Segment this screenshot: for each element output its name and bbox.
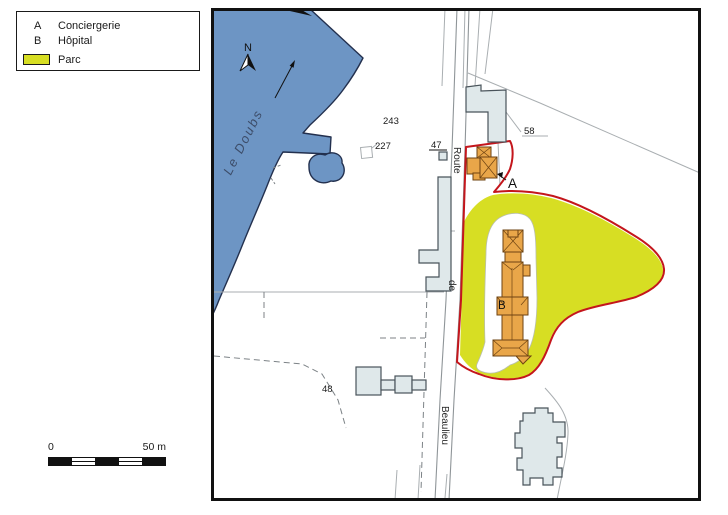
scale-bar-segment	[72, 458, 95, 465]
road-label-de: de	[446, 280, 457, 292]
parcel-number-243: 243	[383, 116, 399, 127]
building-small-47	[439, 152, 447, 160]
legend-label-parc: Parc	[58, 53, 81, 67]
legend-key-b: B	[34, 34, 58, 48]
scale-end-label: 50 m	[143, 441, 166, 453]
scale-bar: 0 50 m	[48, 441, 166, 466]
scale-bar-strip	[48, 457, 166, 466]
parcel-number-47: 47	[431, 140, 442, 151]
scale-bar-segment	[119, 458, 142, 465]
map-figure: A Conciergerie B Hôpital Parc N Le Doubs	[0, 0, 728, 515]
scale-start-label: 0	[48, 441, 54, 453]
scale-bar-labels: 0 50 m	[48, 441, 166, 453]
legend-key-a: A	[34, 19, 58, 33]
parcel-number-48: 48	[322, 384, 333, 395]
legend-label-hopital: Hôpital	[58, 34, 92, 48]
scale-bar-segment	[142, 458, 165, 465]
pond	[309, 153, 344, 183]
marker-b-label: B	[498, 300, 506, 312]
road-label-route: Route	[451, 147, 462, 174]
scale-bar-segment	[95, 458, 118, 465]
parcel-number-227: 227	[375, 141, 391, 152]
site-map: N Le Doubs	[211, 8, 701, 501]
marker-a-label: A	[508, 176, 517, 191]
road-label-beaulieu: Beaulieu	[439, 406, 450, 445]
north-label: N	[244, 42, 252, 54]
scale-bar-segment	[49, 458, 72, 465]
legend-item-hopital: B Hôpital	[22, 33, 191, 48]
legend: A Conciergerie B Hôpital Parc	[16, 11, 200, 71]
legend-item-parc: Parc	[22, 52, 191, 67]
legend-label-conciergerie: Conciergerie	[58, 19, 120, 33]
legend-item-conciergerie: A Conciergerie	[22, 18, 191, 33]
parc-color-swatch	[23, 54, 50, 65]
parcel-number-58: 58	[524, 126, 535, 137]
